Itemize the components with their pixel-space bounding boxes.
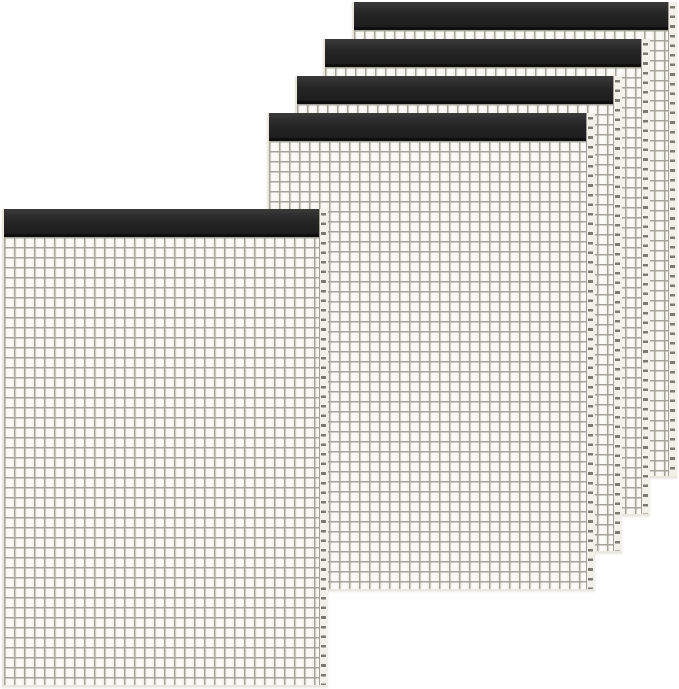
pad-page-edge-stack bbox=[668, 2, 677, 476]
pad-page-edge-stack bbox=[319, 209, 328, 685]
pad-binding bbox=[4, 209, 319, 237]
pad-binding bbox=[269, 113, 586, 141]
pad-page-edge-stack bbox=[641, 39, 650, 514]
notepad-front bbox=[2, 209, 328, 687]
pad-binding bbox=[325, 39, 641, 67]
pad-binding bbox=[354, 2, 668, 30]
product-photo-canvas bbox=[0, 0, 679, 689]
pad-page-edge-stack bbox=[613, 76, 622, 551]
pad-page-edge-stack bbox=[586, 113, 595, 589]
pad-grid-paper bbox=[4, 237, 319, 685]
pad-binding bbox=[297, 76, 613, 104]
